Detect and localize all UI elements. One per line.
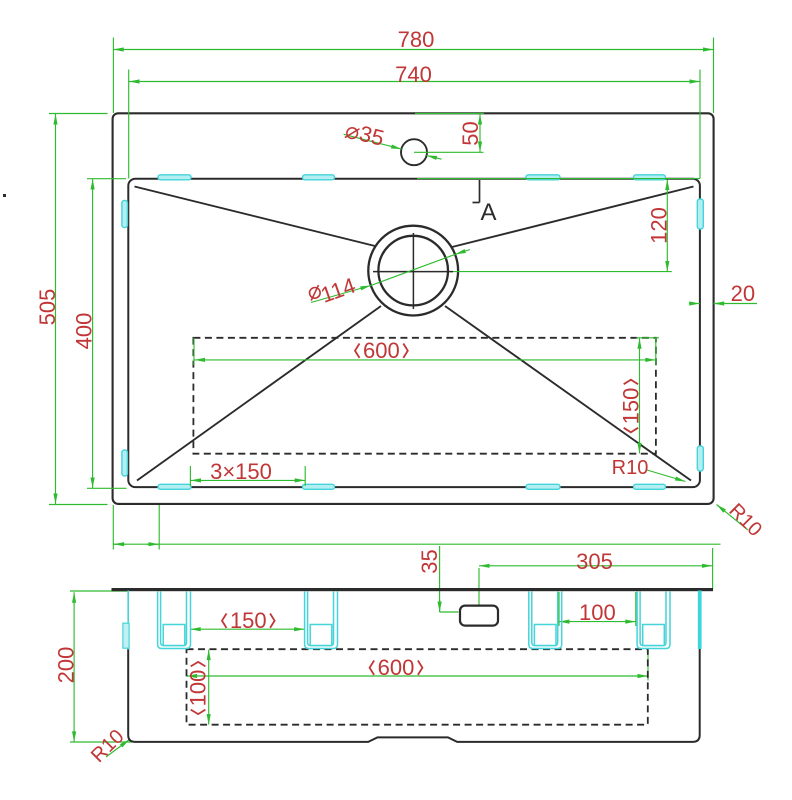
svg-text:A: A (481, 199, 497, 226)
svg-text:150: 150 (230, 608, 267, 633)
svg-text:35: 35 (417, 549, 442, 573)
svg-text:305: 305 (576, 549, 613, 574)
svg-text:R10: R10 (612, 457, 649, 479)
svg-text:100: 100 (579, 600, 616, 625)
svg-text:200: 200 (54, 647, 79, 684)
svg-text:600: 600 (378, 655, 415, 680)
svg-text:120: 120 (647, 207, 672, 244)
svg-text:20: 20 (731, 281, 755, 306)
svg-text:150: 150 (619, 388, 644, 425)
svg-text:50: 50 (458, 121, 483, 145)
svg-text:100: 100 (186, 670, 211, 707)
svg-text:3×150: 3×150 (210, 459, 272, 484)
svg-text:780: 780 (398, 27, 435, 52)
svg-text:740: 740 (395, 62, 432, 87)
svg-text:505: 505 (35, 289, 60, 326)
svg-text:600: 600 (363, 338, 400, 363)
svg-text:400: 400 (72, 313, 97, 350)
